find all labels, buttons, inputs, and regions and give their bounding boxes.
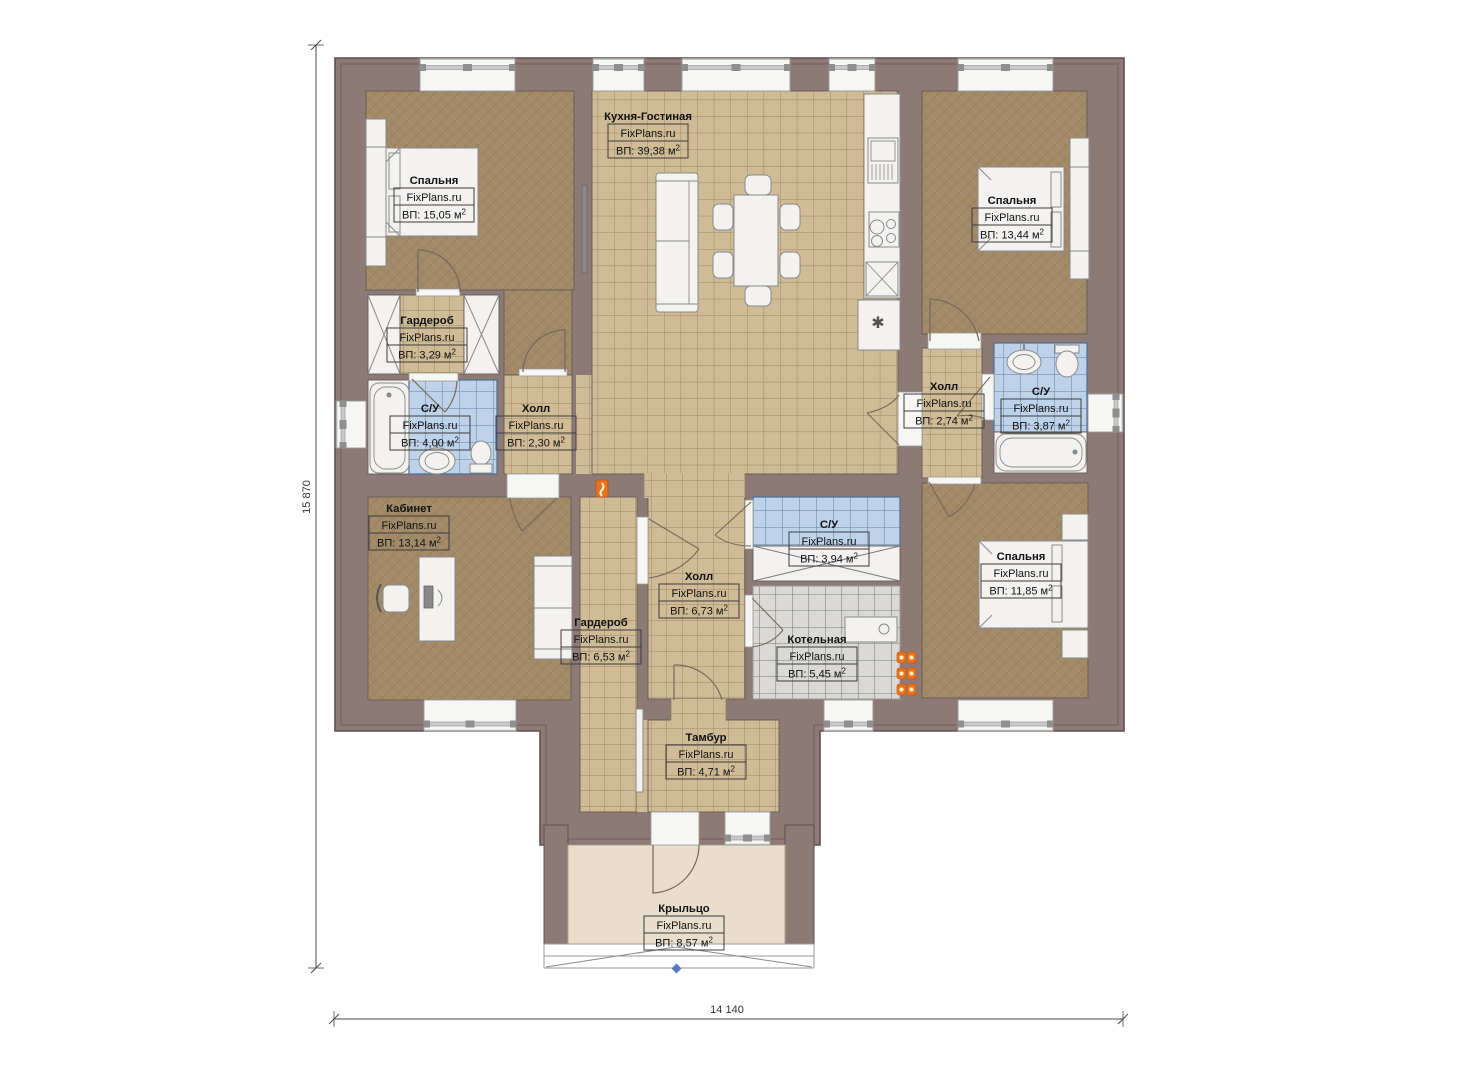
svg-text:Кухня-Гостиная: Кухня-Гостиная bbox=[604, 111, 692, 123]
svg-text:FixPlans.ru: FixPlans.ru bbox=[381, 520, 436, 532]
svg-text:Котельная: Котельная bbox=[787, 634, 846, 646]
svg-text:ВП: 4,00 м2: ВП: 4,00 м2 bbox=[401, 436, 459, 450]
svg-text:Спальня: Спальня bbox=[988, 195, 1037, 207]
svg-text:FixPlans.ru: FixPlans.ru bbox=[406, 192, 461, 204]
svg-text:Кабинет: Кабинет bbox=[386, 503, 432, 515]
svg-text:ВП: 13,44 м2: ВП: 13,44 м2 bbox=[980, 228, 1045, 242]
svg-text:14 140: 14 140 bbox=[710, 1004, 744, 1016]
svg-text:Гардероб: Гардероб bbox=[574, 617, 627, 629]
svg-text:ВП: 15,05 м2: ВП: 15,05 м2 bbox=[402, 208, 467, 222]
svg-text:Спальня: Спальня bbox=[997, 551, 1046, 563]
svg-text:FixPlans.ru: FixPlans.ru bbox=[671, 588, 726, 600]
svg-text:ВП: 2,74 м2: ВП: 2,74 м2 bbox=[915, 414, 973, 428]
svg-text:✱: ✱ bbox=[871, 315, 884, 332]
svg-text:ВП: 8,57 м2: ВП: 8,57 м2 bbox=[655, 936, 713, 950]
svg-text:FixPlans.ru: FixPlans.ru bbox=[916, 398, 971, 410]
svg-text:ВП: 2,30 м2: ВП: 2,30 м2 bbox=[507, 436, 565, 450]
svg-text:Холл: Холл bbox=[522, 403, 550, 415]
svg-text:FixPlans.ru: FixPlans.ru bbox=[789, 651, 844, 663]
svg-text:15 870: 15 870 bbox=[301, 480, 313, 514]
svg-text:FixPlans.ru: FixPlans.ru bbox=[620, 128, 675, 140]
svg-text:ВП: 6,53 м2: ВП: 6,53 м2 bbox=[572, 650, 630, 664]
svg-text:ВП: 5,45 м2: ВП: 5,45 м2 bbox=[788, 667, 846, 681]
svg-text:FixPlans.ru: FixPlans.ru bbox=[984, 212, 1039, 224]
svg-text:С/У: С/У bbox=[820, 519, 839, 531]
svg-text:ВП: 13,14 м2: ВП: 13,14 м2 bbox=[377, 536, 442, 550]
svg-text:FixPlans.ru: FixPlans.ru bbox=[402, 420, 457, 432]
svg-text:Холл: Холл bbox=[685, 571, 713, 583]
svg-text:FixPlans.ru: FixPlans.ru bbox=[801, 536, 856, 548]
svg-text:FixPlans.ru: FixPlans.ru bbox=[508, 420, 563, 432]
svg-text:ВП: 6,73 м2: ВП: 6,73 м2 bbox=[670, 604, 728, 618]
svg-text:Холл: Холл bbox=[930, 381, 958, 393]
svg-text:ВП: 3,94 м2: ВП: 3,94 м2 bbox=[800, 552, 858, 566]
svg-text:FixPlans.ru: FixPlans.ru bbox=[573, 634, 628, 646]
svg-text:FixPlans.ru: FixPlans.ru bbox=[1013, 403, 1068, 415]
svg-text:FixPlans.ru: FixPlans.ru bbox=[399, 332, 454, 344]
svg-text:ВП: 3,87 м2: ВП: 3,87 м2 bbox=[1012, 419, 1070, 433]
svg-text:ВП: 4,71 м2: ВП: 4,71 м2 bbox=[677, 765, 735, 779]
svg-text:Спальня: Спальня bbox=[410, 175, 459, 187]
svg-text:С/У: С/У bbox=[1032, 386, 1051, 398]
svg-text:Тамбур: Тамбур bbox=[686, 732, 727, 744]
svg-text:Гардероб: Гардероб bbox=[400, 315, 453, 327]
svg-text:С/У: С/У bbox=[421, 403, 440, 415]
svg-text:ВП: 39,38 м2: ВП: 39,38 м2 bbox=[616, 144, 681, 158]
svg-text:FixPlans.ru: FixPlans.ru bbox=[678, 749, 733, 761]
svg-text:FixPlans.ru: FixPlans.ru bbox=[993, 568, 1048, 580]
svg-text:ВП: 11,85 м2: ВП: 11,85 м2 bbox=[989, 584, 1053, 598]
svg-text:FixPlans.ru: FixPlans.ru bbox=[656, 920, 711, 932]
svg-text:Крыльцо: Крыльцо bbox=[658, 903, 710, 915]
svg-text:ВП: 3,29 м2: ВП: 3,29 м2 bbox=[398, 348, 456, 362]
